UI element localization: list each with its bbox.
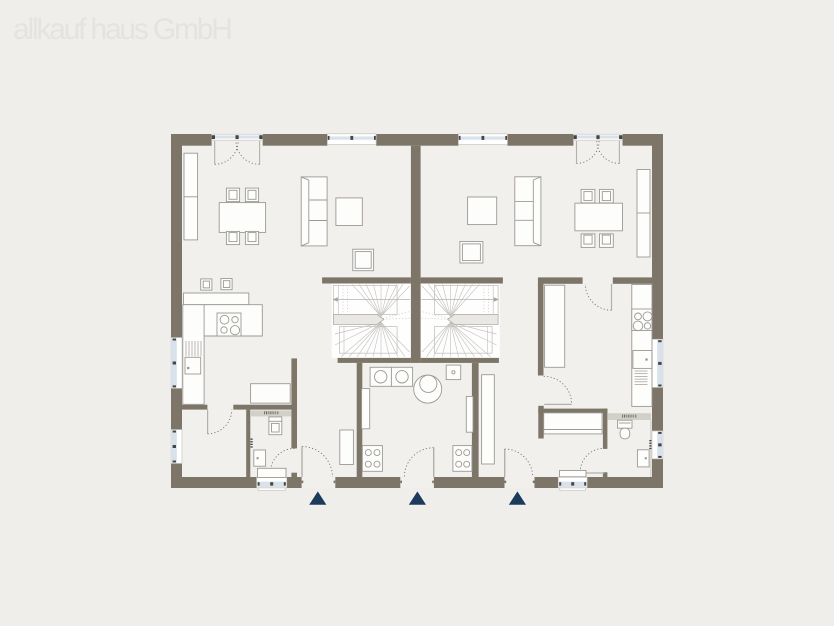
svg-text:allkauf haus GmbH: allkauf haus GmbH xyxy=(13,13,231,46)
